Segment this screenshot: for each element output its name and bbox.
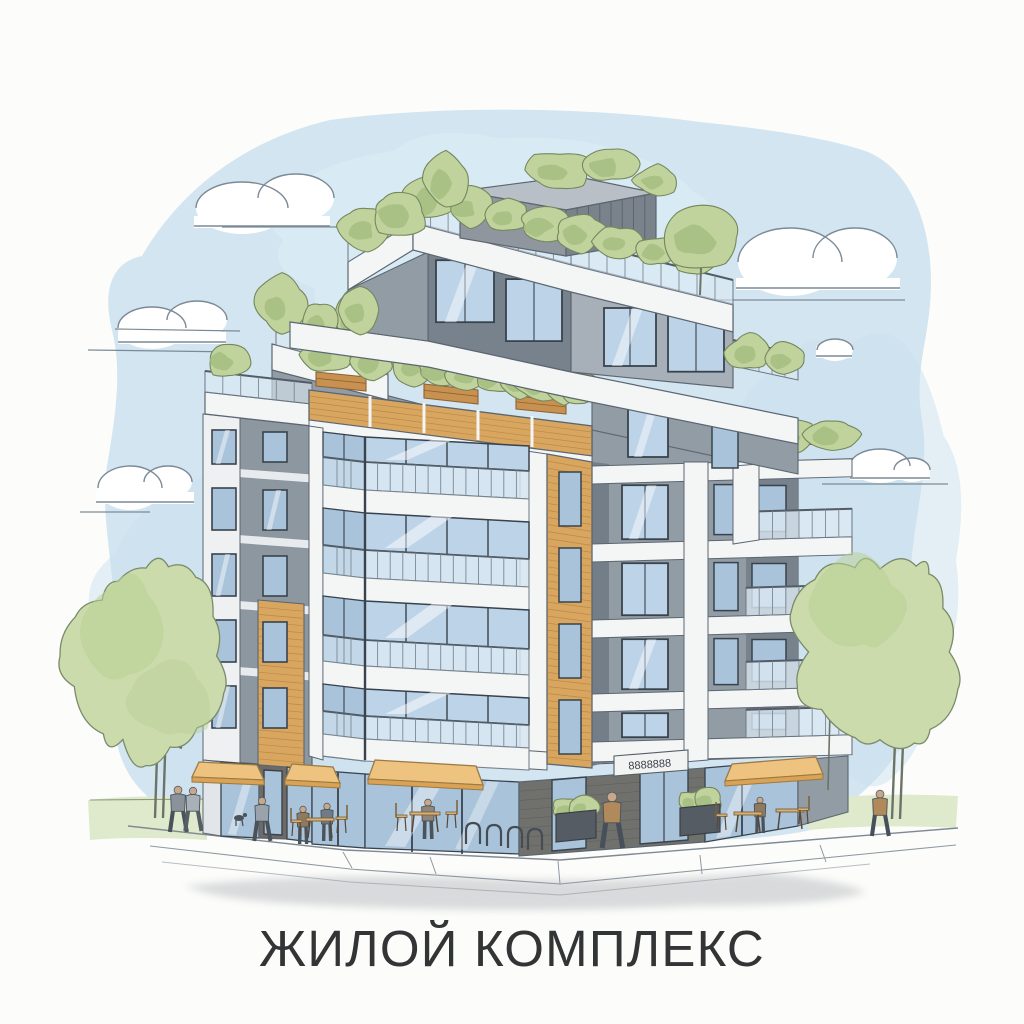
svg-text:ЖИЛОЙ КОМПЛЕКС: ЖИЛОЙ КОМПЛЕКС <box>259 919 765 977</box>
